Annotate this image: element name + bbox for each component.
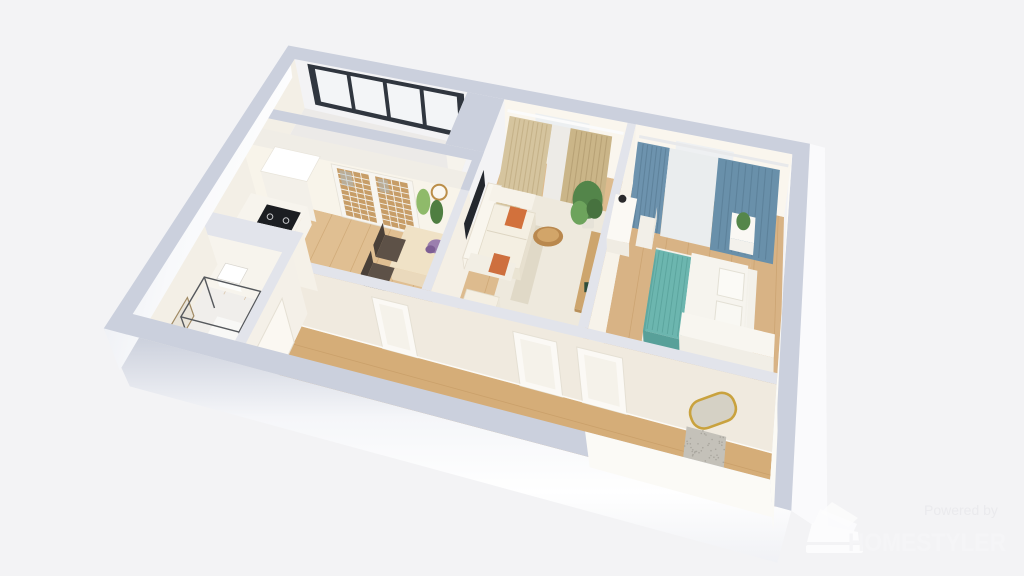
svg-text:Powered by: Powered by <box>924 502 998 518</box>
svg-text:HOMESTYLER: HOMESTYLER <box>848 529 1006 557</box>
